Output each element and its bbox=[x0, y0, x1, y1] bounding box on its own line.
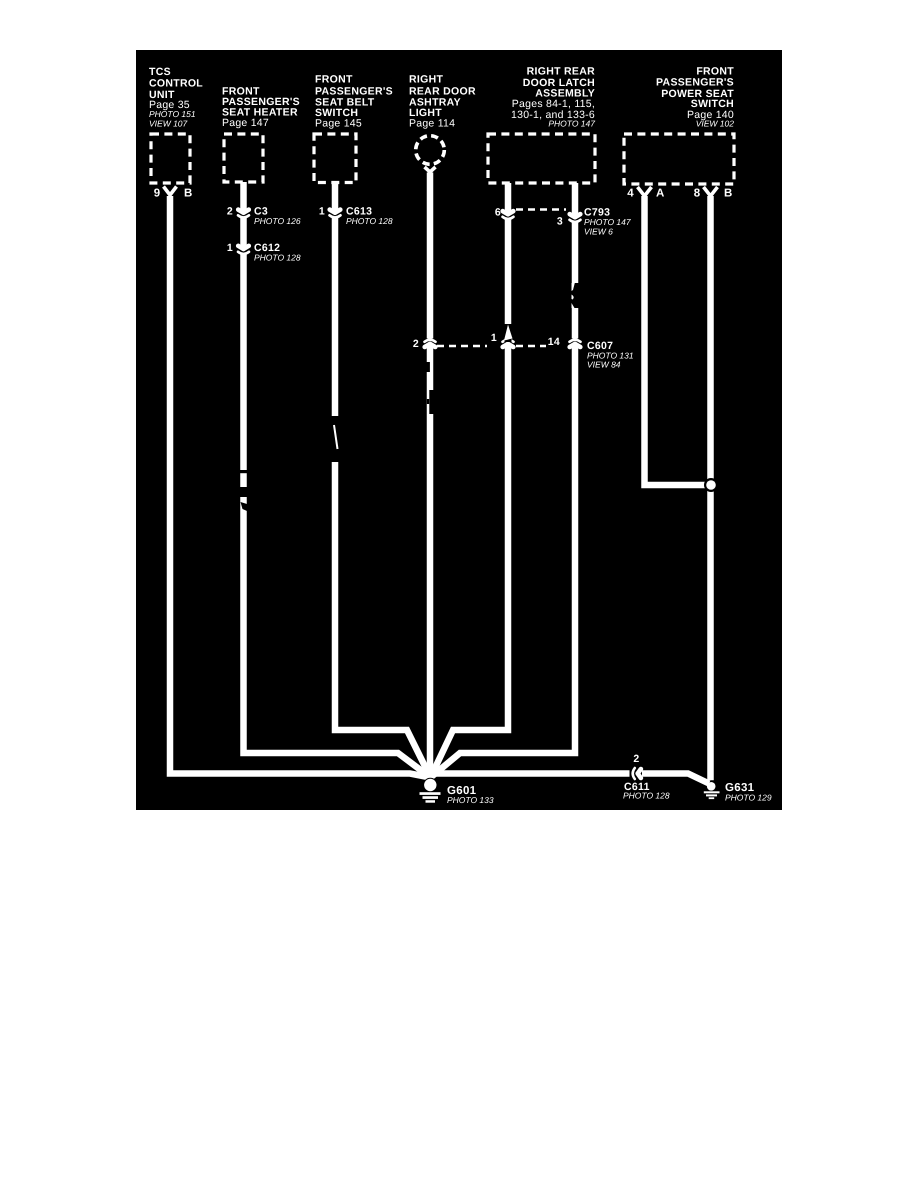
svg-text:PHOTO 128: PHOTO 128 bbox=[346, 216, 393, 226]
svg-text:RIGHT: RIGHT bbox=[409, 74, 443, 86]
svg-text:PHOTO 147: PHOTO 147 bbox=[584, 217, 631, 227]
svg-text:8: 8 bbox=[694, 188, 701, 200]
svg-text:VIEW 102: VIEW 102 bbox=[696, 119, 735, 129]
svg-text:2: 2 bbox=[227, 206, 233, 218]
svg-text:4: 4 bbox=[627, 188, 634, 200]
svg-text:FRONT: FRONT bbox=[315, 74, 353, 86]
svg-text:PHOTO 128: PHOTO 128 bbox=[623, 791, 670, 801]
svg-text:PHOTO 147: PHOTO 147 bbox=[548, 119, 595, 129]
svg-text:PHOTO 129: PHOTO 129 bbox=[725, 793, 772, 803]
svg-text:PHOTO 128: PHOTO 128 bbox=[254, 253, 301, 263]
svg-text:14: 14 bbox=[548, 336, 560, 348]
svg-text:PASSENGER'S: PASSENGER'S bbox=[656, 77, 734, 89]
svg-text:1: 1 bbox=[227, 242, 233, 254]
svg-text:2: 2 bbox=[633, 753, 639, 765]
svg-text:2: 2 bbox=[413, 338, 419, 350]
svg-text:VIEW 84: VIEW 84 bbox=[587, 360, 621, 370]
svg-text:CONTROL: CONTROL bbox=[149, 78, 203, 90]
svg-text:A: A bbox=[656, 188, 665, 200]
svg-text:TCS: TCS bbox=[149, 66, 171, 78]
svg-text:Page 114: Page 114 bbox=[409, 118, 455, 130]
svg-text:Page 145: Page 145 bbox=[315, 118, 362, 130]
svg-text:PHOTO 126: PHOTO 126 bbox=[254, 216, 301, 226]
svg-text:VIEW 6: VIEW 6 bbox=[584, 227, 613, 237]
svg-text:VIEW 107: VIEW 107 bbox=[149, 119, 188, 129]
svg-text:9: 9 bbox=[154, 188, 161, 200]
svg-text:PHOTO 151: PHOTO 151 bbox=[149, 109, 196, 119]
svg-text:B: B bbox=[724, 188, 733, 200]
svg-text:Page 147: Page 147 bbox=[222, 117, 269, 129]
svg-text:RIGHT REAR: RIGHT REAR bbox=[527, 66, 595, 78]
svg-text:1: 1 bbox=[319, 206, 325, 218]
svg-text:6: 6 bbox=[495, 207, 501, 219]
svg-text:1: 1 bbox=[491, 332, 497, 344]
svg-text:B: B bbox=[184, 188, 193, 200]
svg-text:3: 3 bbox=[557, 216, 563, 228]
svg-text:PHOTO 133: PHOTO 133 bbox=[447, 795, 494, 805]
